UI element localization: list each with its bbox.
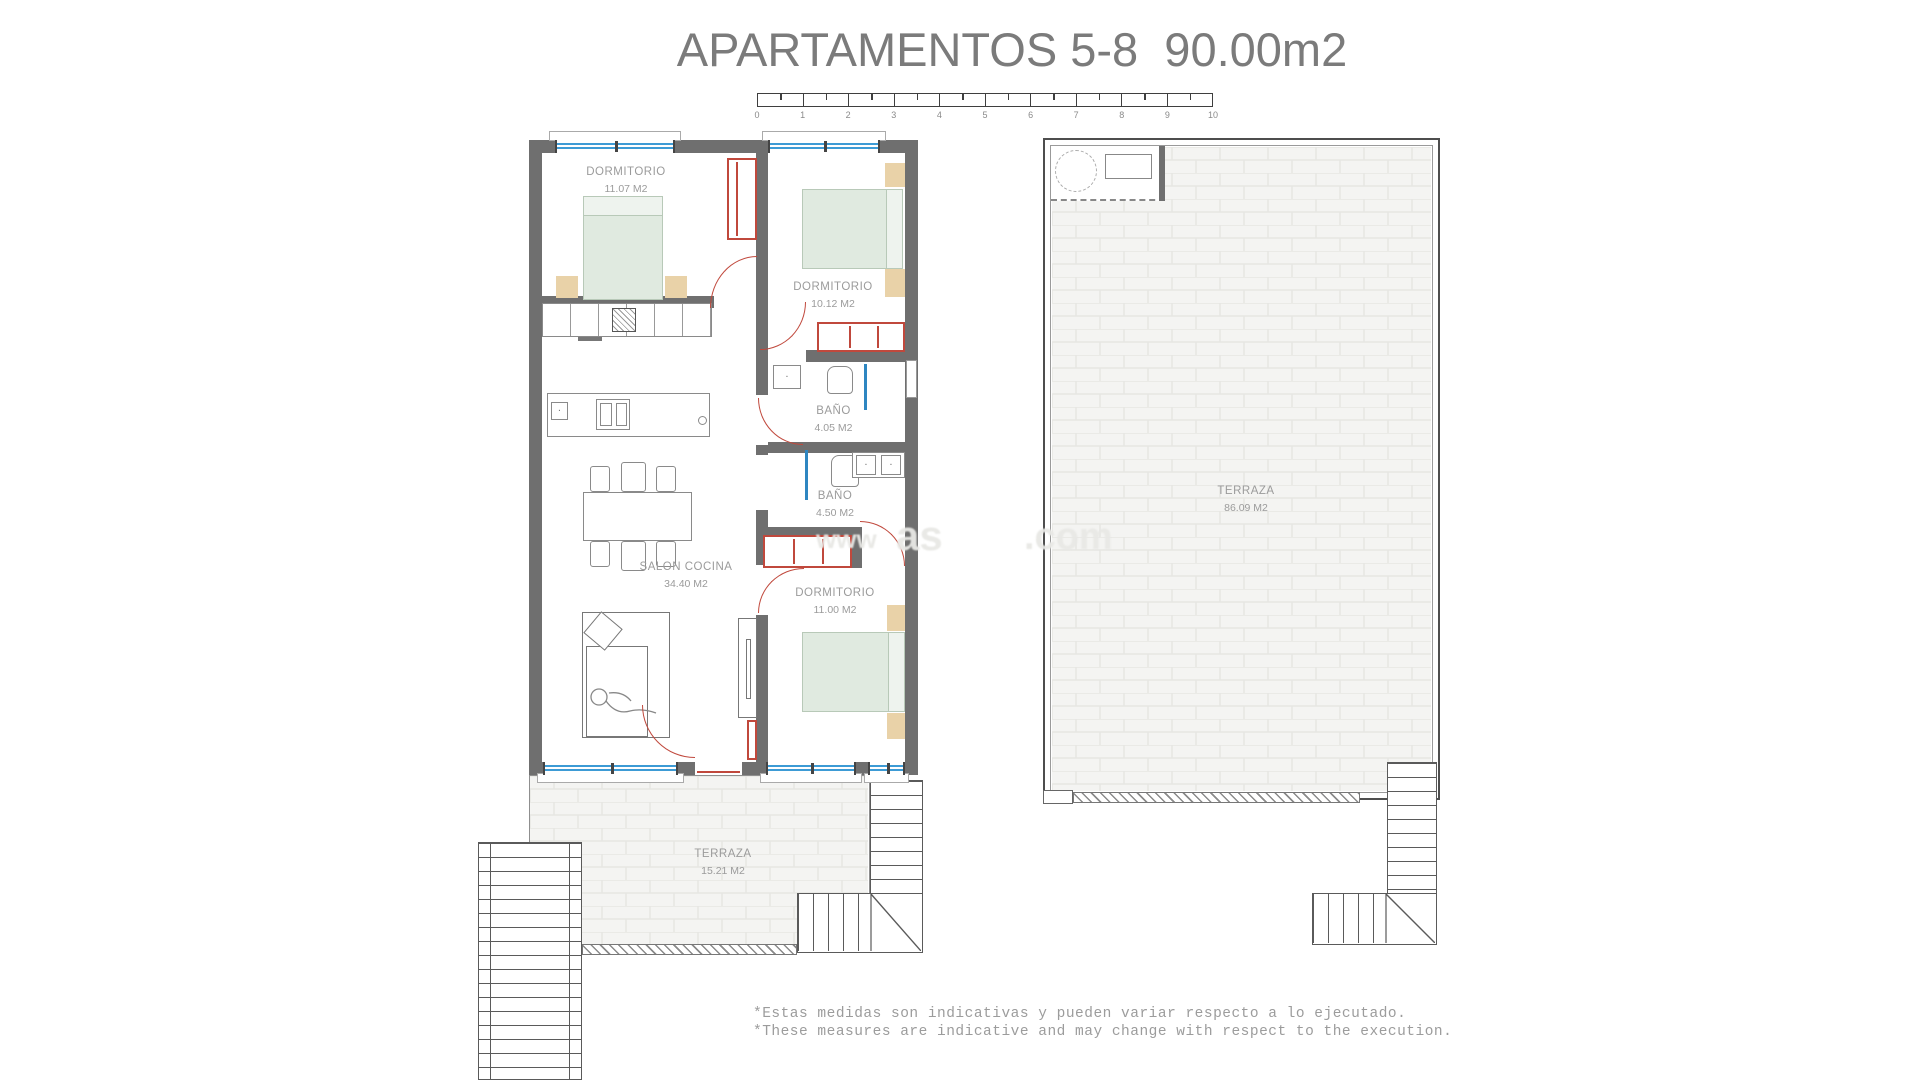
chair xyxy=(590,466,610,492)
terrace-stairs-run xyxy=(870,780,923,895)
solarium-stairs-corner xyxy=(1312,893,1437,945)
chair xyxy=(621,462,646,492)
terrace-edge-hatch xyxy=(582,944,797,955)
tv-unit xyxy=(738,618,757,718)
room-label-bano1: BAÑO 4.05 M2 xyxy=(771,402,896,437)
nightstand xyxy=(887,713,905,739)
hob-square xyxy=(551,402,568,420)
wall-left xyxy=(529,140,542,775)
door-terrace xyxy=(642,705,695,758)
stair-diagonal xyxy=(1313,894,1435,943)
toilet xyxy=(827,366,853,394)
window-bedroom1 xyxy=(555,140,675,153)
water-tank-circle xyxy=(1055,150,1097,192)
tv-screen xyxy=(746,639,751,699)
terrace-stairs-corner xyxy=(797,893,923,953)
nightstand xyxy=(885,163,905,187)
scale-bar-numbers: 0 1 2 3 4 5 6 7 8 9 10 xyxy=(757,110,1213,122)
chair xyxy=(656,466,676,492)
scale-segment xyxy=(849,94,895,106)
scale-segment xyxy=(940,94,986,106)
scale-segment xyxy=(1077,94,1123,106)
bed-double xyxy=(802,632,905,712)
room-label-dormitorio3: DORMITORIO 11.00 M2 xyxy=(755,584,915,619)
sofa-cushion xyxy=(583,611,622,650)
disclaimer: *Estas medidas son indicativas y pueden … xyxy=(753,1005,1452,1041)
scale-segment xyxy=(804,94,850,106)
scale-tick-label: 5 xyxy=(982,110,987,120)
nightstand xyxy=(556,276,578,298)
sink-bowl xyxy=(600,403,612,426)
cooktop xyxy=(612,308,636,332)
watermark-fragment: .com xyxy=(1024,516,1113,559)
room-label-terraza-apartment: TERRAZA 15.21 M2 xyxy=(643,845,803,880)
bed-double xyxy=(583,196,663,300)
scale-tick-label: 8 xyxy=(1119,110,1124,120)
window-bedroom3 xyxy=(766,762,856,775)
wall-hall-d xyxy=(756,615,768,762)
watermark-fragment: www xyxy=(816,524,877,555)
sink-bowl xyxy=(616,403,627,426)
edge-corner-box xyxy=(1043,790,1073,804)
scale-segment xyxy=(895,94,941,106)
room-label-dormitorio2: DORMITORIO 10.12 M2 xyxy=(753,278,913,313)
wardrobe-divider xyxy=(736,162,738,236)
washbasin xyxy=(881,455,901,475)
island-knob xyxy=(698,416,707,425)
closet-divider xyxy=(877,326,879,348)
room-label-terraza-solarium: TERRAZA 86.09 M2 xyxy=(1166,482,1326,517)
page-title: APARTAMENTOS 5-8 90.00m2 xyxy=(677,22,1347,77)
solarium-paving xyxy=(1052,147,1431,791)
disclaimer-line-en: *These measures are indicative and may c… xyxy=(753,1023,1452,1041)
solarium-stairs-run xyxy=(1387,762,1437,895)
washbasin xyxy=(856,455,876,475)
scale-bar xyxy=(757,93,1213,107)
washbasin xyxy=(773,365,801,389)
bed-pillows xyxy=(583,196,663,216)
window-bedroom2 xyxy=(768,140,880,153)
bathroom-window-niche xyxy=(906,360,917,398)
scale-segment xyxy=(1122,94,1168,106)
stair-diagonal xyxy=(798,894,921,951)
bed-double xyxy=(802,189,903,269)
exterior-staircase xyxy=(478,842,582,1080)
scale-tick-label: 2 xyxy=(846,110,851,120)
wall-bedrooms-divider xyxy=(756,153,768,296)
bed-pillows xyxy=(886,189,903,269)
equipment-box xyxy=(1105,154,1152,179)
counter-handle xyxy=(578,337,602,341)
window-salon xyxy=(543,762,678,775)
room-label-bano2: BAÑO 4.50 M2 xyxy=(771,487,899,522)
wall-right xyxy=(905,140,918,775)
scale-tick-label: 3 xyxy=(891,110,896,120)
scale-tick-label: 6 xyxy=(1028,110,1033,120)
scale-segment xyxy=(1168,94,1213,106)
closet-divider xyxy=(793,539,795,564)
scale-segment xyxy=(1031,94,1077,106)
closet-divider xyxy=(849,326,851,348)
door-bedroom1 xyxy=(710,256,757,308)
scale-segment xyxy=(758,94,804,106)
utility-wall xyxy=(1159,146,1165,201)
closet xyxy=(817,322,905,352)
scale-tick-label: 4 xyxy=(937,110,942,120)
wardrobe xyxy=(727,158,757,240)
watermark-fragment: as xyxy=(896,512,943,560)
scale-tick-label: 7 xyxy=(1074,110,1079,120)
room-label-salon: SALON COCINA 34.40 M2 xyxy=(606,558,766,593)
scale-segment xyxy=(986,94,1032,106)
window-bedroom3-small xyxy=(868,762,905,775)
door-frame xyxy=(747,720,757,760)
scale-tick-label: 9 xyxy=(1165,110,1170,120)
wall-hall-b xyxy=(756,445,768,455)
disclaimer-line-es: *Estas medidas son indicativas y pueden … xyxy=(753,1005,1452,1023)
scale-tick-label: 1 xyxy=(800,110,805,120)
terrace-edge-hatch xyxy=(1073,792,1360,803)
scale-tick-label: 0 xyxy=(754,110,759,120)
terrace-door-opening xyxy=(695,762,742,775)
bed-pillows xyxy=(888,632,905,712)
terrace-door-threshold xyxy=(697,771,740,773)
floor-plan-canvas: APARTAMENTOS 5-8 90.00m2 0 1 2 3 4 5 6 7… xyxy=(0,0,1920,1080)
scale-tick-label: 10 xyxy=(1208,110,1218,120)
nightstand xyxy=(665,276,687,298)
room-label-dormitorio1: DORMITORIO 11.07 M2 xyxy=(546,163,706,198)
dining-table xyxy=(583,492,692,541)
